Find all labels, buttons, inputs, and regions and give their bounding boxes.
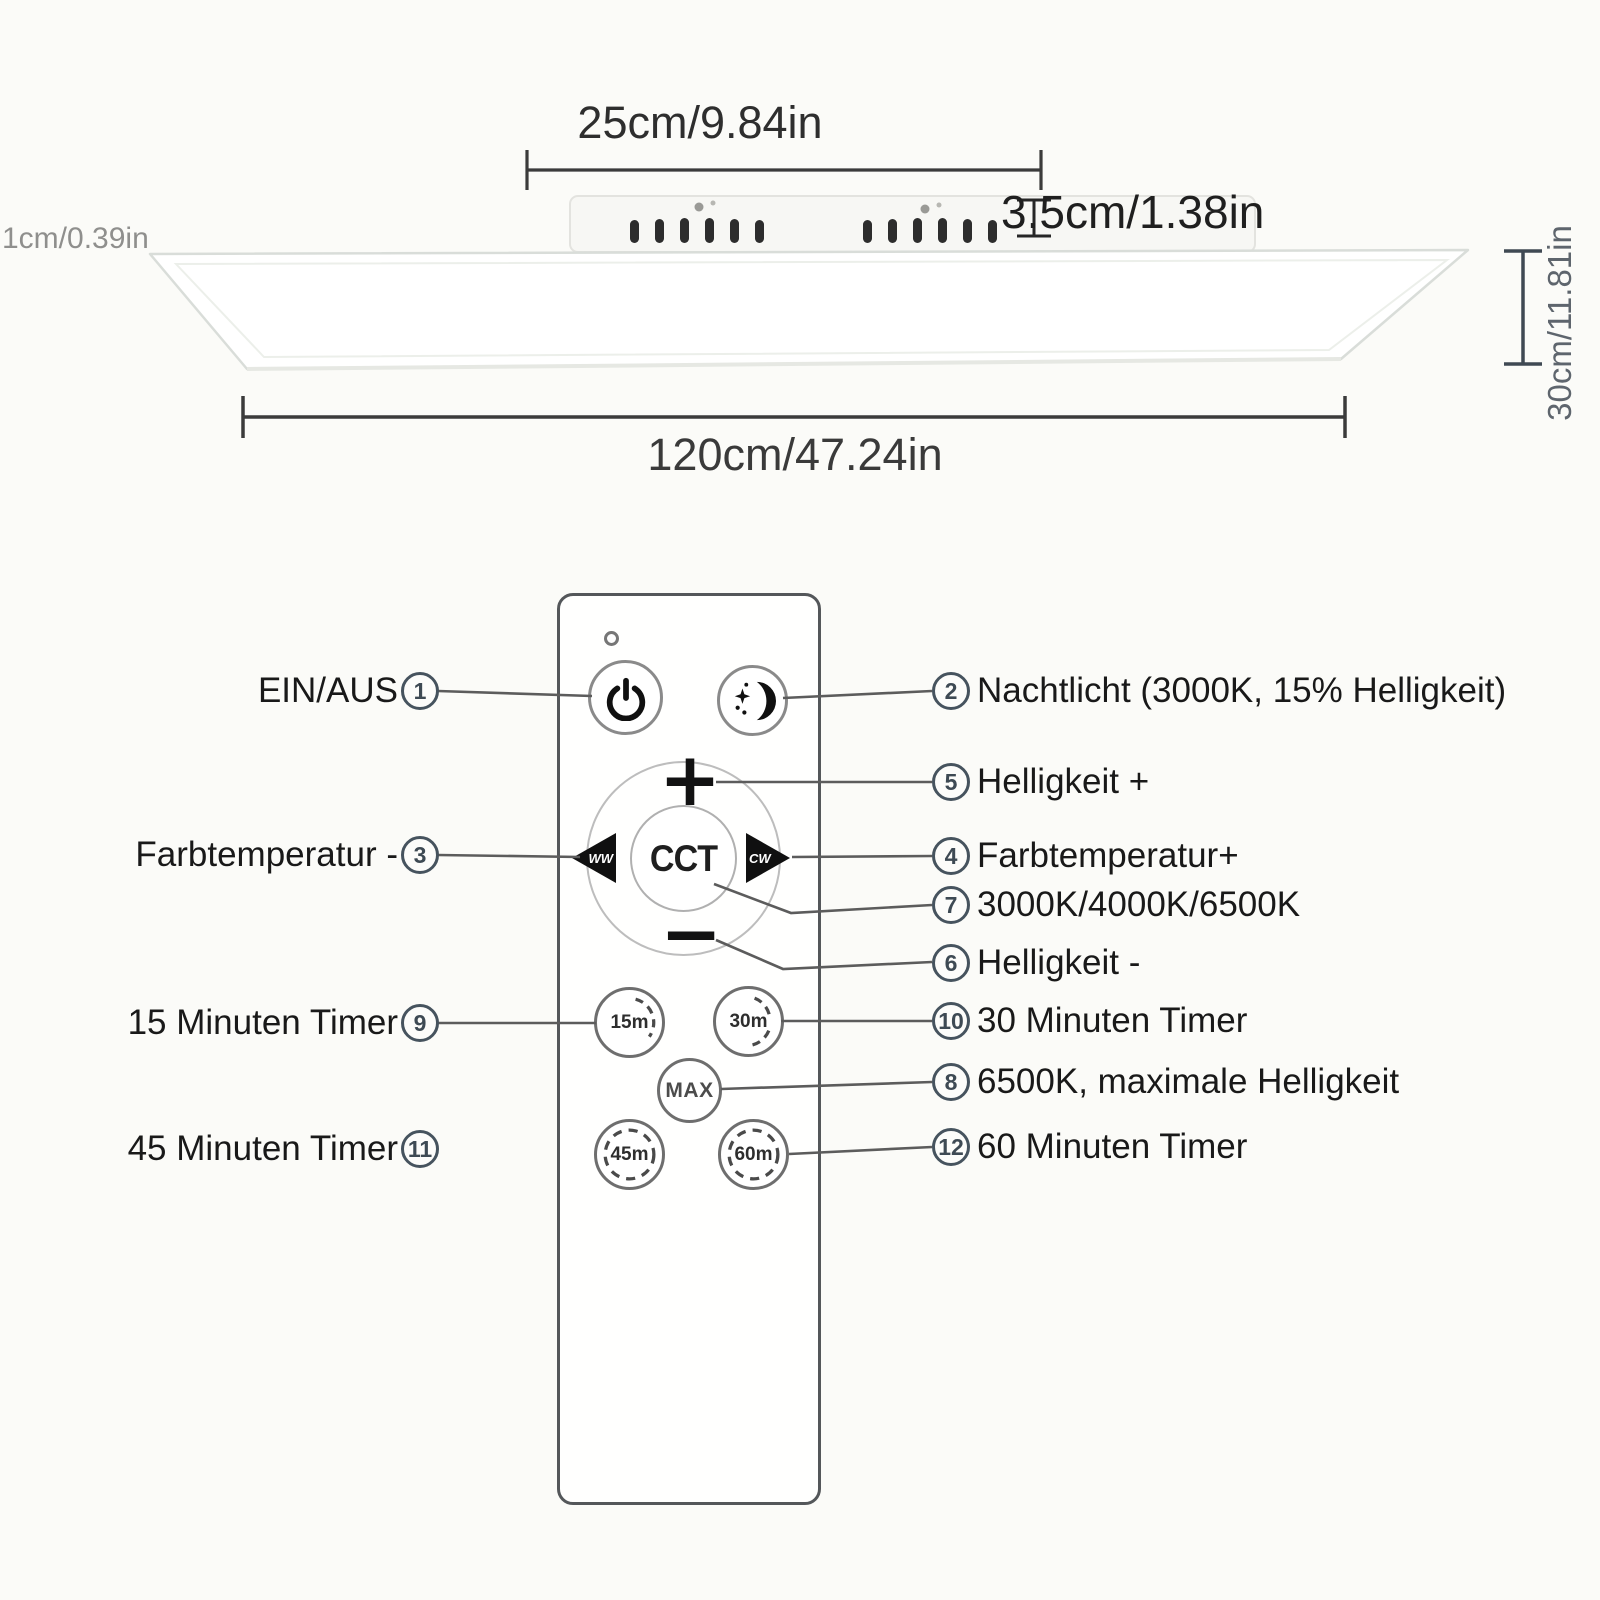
label-15-min-timer: 15 Minuten Timer (40, 1001, 398, 1045)
led-panel (150, 250, 1468, 369)
brightness-minus-button: − (651, 896, 731, 976)
timer-30m-label: 30m (729, 1011, 767, 1033)
timer-15m-label: 15m (610, 1012, 648, 1034)
timer-15m-button: 15m (594, 987, 665, 1058)
dim-label-bracket-width: 25cm/9.84in (500, 97, 900, 149)
callout-num-11: 11 (401, 1130, 439, 1168)
timer-45m-label: 45m (610, 1144, 648, 1166)
timer-60m-label: 60m (734, 1144, 772, 1166)
bracket-slots-left (630, 218, 764, 243)
dim-label-panel-width: 120cm/47.24in (590, 429, 1000, 481)
bracket-screws (695, 201, 942, 214)
label-max-helligkeit: 6500K, maximale Helligkeit (977, 1060, 1399, 1104)
callout-num-10: 10 (932, 1002, 970, 1040)
timer-30m-button: 30m (713, 986, 784, 1057)
callout-num-7: 7 (932, 886, 970, 924)
cool-white-arrow-button: CW (746, 833, 790, 883)
callout-num-9: 9 (401, 1004, 439, 1042)
night-light-button (717, 665, 788, 736)
dim-label-bracket-height: 3.5cm/1.38in (1001, 185, 1264, 239)
timer-45m-button: 45m (594, 1119, 665, 1190)
moon-stars-icon (730, 678, 776, 724)
callout-num-1: 1 (401, 672, 439, 710)
label-45-min-timer: 45 Minuten Timer (40, 1127, 398, 1171)
max-brightness-button: MAX (657, 1058, 722, 1123)
callout-num-2: 2 (932, 672, 970, 710)
label-farbtemp-minus: Farbtemperatur - (40, 833, 398, 877)
cct-label: CCT (650, 838, 717, 880)
brightness-plus-button: + (650, 742, 730, 822)
label-nachtlicht: Nachtlicht (3000K, 15% Helligkeit) (977, 669, 1506, 713)
label-30-min-timer: 30 Minuten Timer (977, 999, 1247, 1043)
callout-num-3: 3 (401, 836, 439, 874)
dim-label-panel-depth: 30cm/11.81in (1541, 203, 1581, 443)
warm-white-arrow-button: WW (572, 833, 616, 883)
label-helligkeit-minus: Helligkeit - (977, 941, 1140, 985)
dim-line-30cm (1504, 251, 1542, 364)
max-label: MAX (665, 1079, 713, 1103)
power-icon (603, 675, 649, 721)
label-helligkeit-plus: Helligkeit + (977, 760, 1149, 804)
panel-bottom-shadow (247, 359, 1341, 369)
label-ein-aus: EIN/AUS (40, 669, 398, 713)
product-diagram: 25cm/9.84in 3.5cm/1.38in 1cm/0.39in 30cm… (0, 0, 1600, 1600)
cw-label: CW (746, 833, 790, 883)
led-panel-inner-frame (176, 260, 1447, 357)
dim-label-panel-edge: 1cm/0.39in (2, 222, 149, 256)
label-kelvin-steps: 3000K/4000K/6500K (977, 883, 1300, 927)
callout-num-12: 12 (932, 1128, 970, 1166)
remote-led-indicator (604, 631, 619, 646)
ww-label: WW (572, 833, 616, 883)
callout-num-5: 5 (932, 763, 970, 801)
label-farbtemp-plus: Farbtemperatur+ (977, 834, 1239, 878)
power-button (588, 660, 663, 735)
label-60-min-timer: 60 Minuten Timer (977, 1125, 1247, 1169)
callout-num-6: 6 (932, 944, 970, 982)
callout-num-4: 4 (932, 837, 970, 875)
bracket-slots-right (863, 218, 997, 243)
dim-line-25cm (527, 150, 1041, 190)
callout-num-8: 8 (932, 1063, 970, 1101)
timer-60m-button: 60m (718, 1119, 789, 1190)
